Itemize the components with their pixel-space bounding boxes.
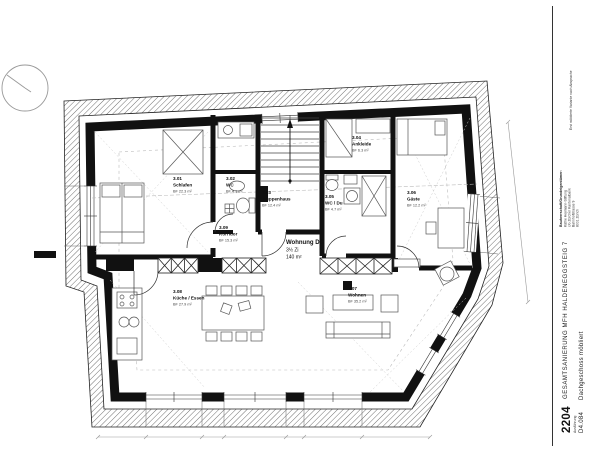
plan-title: Dachgeschoss möbliert	[579, 331, 585, 400]
window-west-bay	[84, 186, 97, 246]
svg-text:WC / Du: WC / Du	[325, 201, 343, 206]
svg-text:BF 6.3 m²: BF 6.3 m²	[352, 149, 369, 153]
skylight-strip-c	[320, 258, 392, 274]
armchair-left	[306, 296, 323, 313]
svg-text:3½ Zi: 3½ Zi	[286, 247, 299, 254]
svg-text:BF 4.1 m²: BF 4.1 m²	[226, 190, 243, 194]
svg-text:3.08: 3.08	[173, 289, 182, 294]
shower	[362, 176, 386, 216]
svg-text:3.02: 3.02	[226, 176, 235, 181]
window-south-3	[304, 392, 362, 402]
drawing-sheet: 3.01 Schlafen BF 22.3 m² 3.02 WC BF 4.1 …	[0, 0, 600, 450]
title-block: 2204 Ausführung GESAMTSANIERUNG MFH HALD…	[553, 6, 586, 446]
project-name: GESAMTSANIERUNG MFH HALDENEGGSTEIG 7	[563, 241, 569, 399]
svg-text:BF 15.3 m²: BF 15.3 m²	[219, 239, 239, 243]
svg-text:BF 35.2 m²: BF 35.2 m²	[348, 300, 368, 304]
north-arrow-icon	[2, 65, 48, 111]
window-south-1	[146, 392, 202, 402]
wardrobe	[163, 130, 203, 174]
armchair-right	[381, 295, 398, 312]
sofa	[326, 322, 390, 338]
svg-text:3.03: 3.03	[262, 190, 271, 195]
svg-text:Gäste: Gäste	[407, 197, 420, 202]
svg-text:3.07: 3.07	[348, 286, 357, 291]
utility-counter	[218, 122, 254, 138]
svg-text:BF 27.9 m²: BF 27.9 m²	[173, 303, 193, 307]
svg-text:3.09: 3.09	[219, 225, 228, 230]
svg-text:Ankleide: Ankleide	[352, 142, 372, 147]
skylight-strip-a	[158, 258, 198, 273]
svg-text:140 m²: 140 m²	[286, 255, 302, 261]
svg-text:BF 12.2 m²: BF 12.2 m²	[407, 204, 427, 208]
svg-text:BF 4.7 m²: BF 4.7 m²	[325, 208, 342, 212]
window-south-2	[224, 392, 286, 402]
svg-text:3.04: 3.04	[352, 135, 361, 140]
double-bed	[100, 183, 144, 243]
floor-plan-drawing: 3.01 Schlafen BF 22.3 m² 3.02 WC BF 4.1 …	[0, 0, 600, 450]
project-number-caption: Ausführung	[573, 416, 577, 433]
svg-text:Wohnen: Wohnen	[348, 293, 366, 298]
svg-text:Korridor: Korridor	[219, 232, 238, 237]
svg-text:Wohnung DG: Wohnung DG	[286, 240, 325, 246]
svg-text:Schlafen: Schlafen	[173, 183, 192, 188]
svg-text:Küche / Essen: Küche / Essen	[173, 296, 205, 301]
section-marker	[34, 251, 56, 258]
svg-text:3.01: 3.01	[173, 176, 182, 181]
tv-sideboard	[394, 259, 420, 267]
kitchen-counter	[112, 288, 142, 360]
plan-number: D4.084	[579, 411, 585, 433]
guest-bed	[397, 119, 447, 155]
client-heading: Bauherrschaft/Grundeigentümer:	[559, 170, 563, 227]
client-line-4: 8001 Zürich	[576, 209, 580, 227]
margin-note: Erst möblierte Variante nach Absprache	[569, 70, 573, 130]
skylight-strip-b	[222, 258, 266, 273]
svg-text:3.06: 3.06	[407, 190, 416, 195]
svg-text:Treppenhaus: Treppenhaus	[262, 197, 291, 202]
svg-text:WC: WC	[226, 183, 234, 188]
svg-text:BF 12.4 m²: BF 12.4 m²	[262, 204, 282, 208]
svg-text:BF 22.3 m²: BF 22.3 m²	[173, 190, 193, 194]
project-number: 2204	[561, 406, 573, 433]
svg-text:3.05: 3.05	[325, 194, 334, 199]
